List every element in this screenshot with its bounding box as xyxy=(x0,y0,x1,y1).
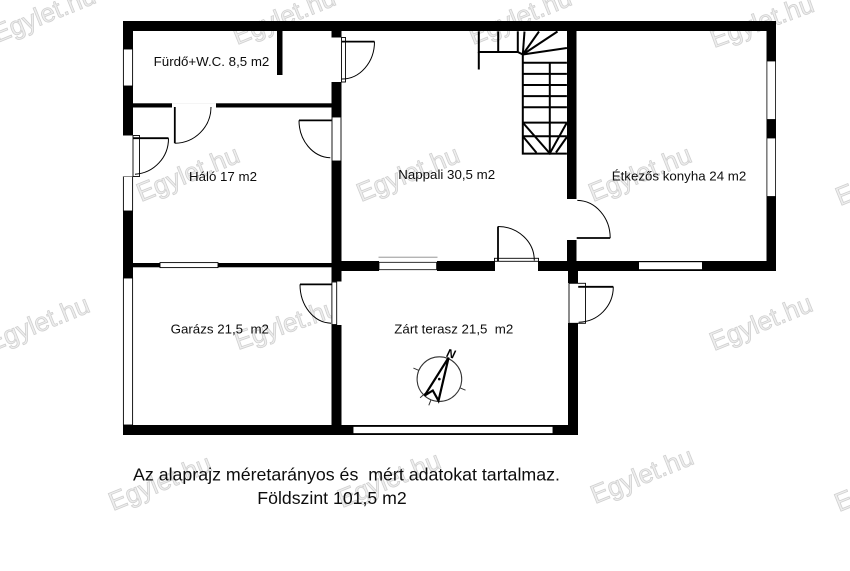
svg-text:Földszint 101,5 m2: Földszint 101,5 m2 xyxy=(257,488,406,508)
svg-text:Garázs 21,5 m2: Garázs 21,5 m2 xyxy=(171,321,269,336)
svg-text:Zárt terasz 21,5 m2: Zárt terasz 21,5 m2 xyxy=(394,321,513,336)
svg-text:Háló 17 m2: Háló 17 m2 xyxy=(189,169,257,184)
svg-text:Fürdő+W.C. 8,5 m2: Fürdő+W.C. 8,5 m2 xyxy=(154,54,270,69)
svg-text:Az alaprajz méretarányos és m: Az alaprajz méretarányos és mért adatoka… xyxy=(133,465,560,485)
svg-text:Nappali 30,5 m2: Nappali 30,5 m2 xyxy=(398,167,495,182)
svg-text:Étkezős konyha 24 m2: Étkezős konyha 24 m2 xyxy=(612,169,747,184)
